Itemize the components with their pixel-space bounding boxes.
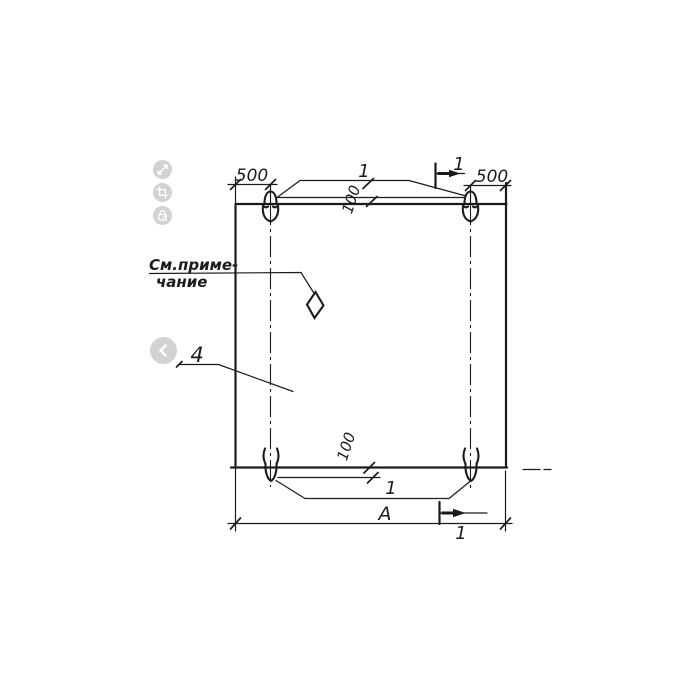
expand-button[interactable] <box>153 160 172 179</box>
dimension-100-bottom: 100 <box>278 430 380 483</box>
previous-button[interactable] <box>150 337 177 364</box>
dimension-overall-width: А <box>228 503 512 529</box>
dim-overall-width-label: А <box>377 503 392 525</box>
callout-top-loops-label: 1 <box>358 161 369 182</box>
lock-icon <box>155 208 170 223</box>
chevron-left-icon <box>150 337 177 364</box>
dim-100-top-label: 100 <box>338 183 364 216</box>
dim-100-bottom-label: 100 <box>333 430 359 463</box>
callout-bottom-loops-label: 1 <box>385 478 396 499</box>
expand-icon <box>155 162 170 177</box>
panel-outline <box>231 183 507 468</box>
technical-drawing: 500 500 100 <box>0 0 700 700</box>
note-line2: чание <box>156 273 207 291</box>
diamond-mark <box>307 292 324 318</box>
section-mark-top: 1 <box>436 154 465 188</box>
section-mark-top-label: 1 <box>453 154 464 175</box>
dimension-500-left: 500 <box>228 166 277 190</box>
crop-button[interactable] <box>153 183 172 202</box>
page: 500 500 100 <box>0 0 700 700</box>
lock-button[interactable] <box>153 206 172 225</box>
dim-500-right-label: 500 <box>476 167 508 187</box>
loop-centerlines <box>271 185 471 490</box>
section-mark-bottom-label: 1 <box>455 523 466 544</box>
dim-500-left-label: 500 <box>236 166 268 186</box>
callout-bottom-loops: 1 <box>276 478 471 499</box>
note-line1: См.приме- <box>149 256 238 274</box>
item-callout-label: 4 <box>190 343 203 367</box>
crop-icon <box>155 185 170 200</box>
